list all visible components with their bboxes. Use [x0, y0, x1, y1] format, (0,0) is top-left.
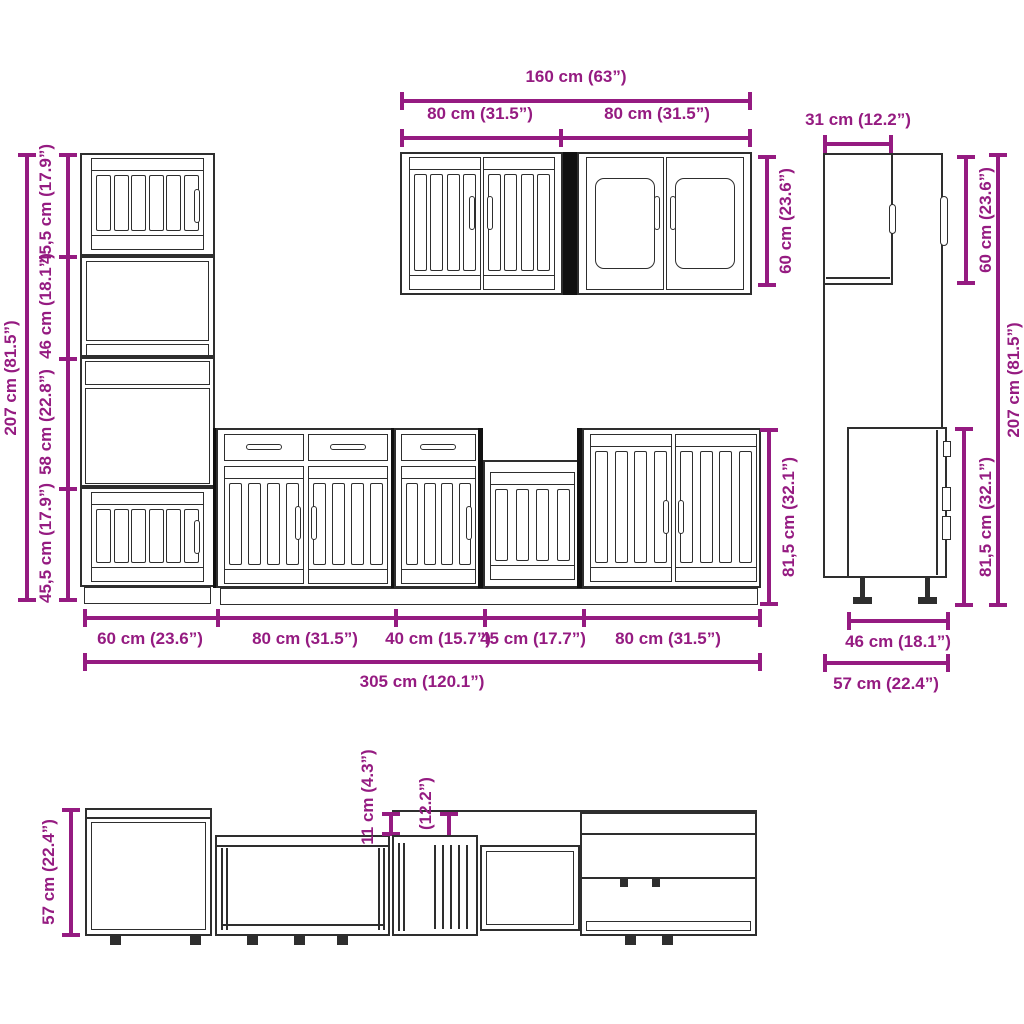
- slat-line: [450, 845, 452, 929]
- tick: [59, 357, 77, 361]
- glass-door: [666, 157, 744, 290]
- door-slat: [166, 509, 181, 563]
- door-rail: [225, 467, 303, 478]
- door-slats: [491, 484, 574, 566]
- door-slat: [332, 483, 345, 565]
- tick: [758, 653, 762, 671]
- door-slats: [225, 478, 303, 570]
- tick: [889, 135, 893, 153]
- slatted-door: [401, 466, 476, 584]
- dim-line-base-depth: [847, 619, 950, 623]
- dim-label-total-width: 305 cm (120.1”): [322, 671, 522, 693]
- tick: [748, 129, 752, 147]
- dim-line-side-base-height: [962, 427, 966, 607]
- door-slat: [700, 451, 713, 563]
- drawer-handle: [420, 444, 456, 450]
- door-slat: [414, 174, 427, 271]
- dim-label-width-80b: 80 cm (31.5”): [568, 628, 768, 650]
- door-handle-profile: [940, 196, 948, 246]
- dim-label-base-height: 81,5 cm (32.1”): [778, 417, 800, 617]
- door-slats: [402, 478, 475, 570]
- door-slat: [536, 489, 549, 561]
- door-handle: [469, 196, 475, 230]
- cabinet-front-band: [586, 921, 751, 931]
- slatted-door: [675, 434, 757, 582]
- tick: [59, 153, 77, 157]
- cabinet-line: [580, 877, 757, 879]
- drawer-edge-profile: [943, 441, 951, 457]
- tick: [957, 281, 975, 285]
- door-rail: [676, 568, 756, 581]
- dim-label-side-base-height: 81,5 cm (32.1”): [975, 417, 997, 617]
- dim-label-wall-right: 80 cm (31.5”): [557, 103, 757, 125]
- foot-mark: [247, 936, 258, 945]
- dim-line-front-offset: [389, 812, 393, 836]
- tick: [946, 612, 950, 630]
- foot-mark: [625, 936, 636, 945]
- door-slat: [557, 489, 570, 561]
- tick: [440, 812, 458, 816]
- door-slat: [131, 175, 146, 231]
- door-handle: [654, 196, 660, 230]
- glass-door: [586, 157, 664, 290]
- door-rail: [309, 570, 387, 583]
- door-slat: [495, 489, 508, 561]
- door-handle: [194, 520, 200, 554]
- tick: [758, 155, 776, 159]
- tick: [989, 153, 1007, 157]
- door-rail: [92, 493, 203, 504]
- foot-mark: [294, 936, 305, 945]
- cabinet-inner-top-view: [91, 822, 206, 930]
- open-cavity: [85, 388, 210, 484]
- door-handle-profile: [889, 204, 896, 234]
- tick: [62, 933, 80, 937]
- glass-panel: [675, 178, 735, 269]
- plinth: [220, 588, 758, 605]
- door-slat: [739, 451, 752, 563]
- door-slats: [92, 504, 203, 568]
- tick: [957, 155, 975, 159]
- drawer-side-line: [383, 848, 385, 930]
- dim-line-total-width: [83, 660, 762, 664]
- slat-line: [458, 845, 460, 929]
- dim-label-wall-total: 160 cm (63”): [476, 66, 676, 88]
- tick: [955, 427, 973, 431]
- tick: [847, 612, 851, 630]
- dim-label-total-height: 207 cm (81.5”): [0, 278, 22, 478]
- door-rail: [591, 568, 671, 581]
- dim-label-wall-height: 60 cm (23.6”): [775, 121, 797, 321]
- wall-cabinet-side: [823, 153, 893, 285]
- base-80b-top-view: [580, 812, 757, 936]
- door-rail: [402, 467, 475, 478]
- door-slat: [516, 489, 529, 561]
- dim-label-tall-section-4: 45,5 cm (17.9”): [35, 443, 57, 643]
- cabinet-line: [826, 277, 890, 279]
- cabinet-line: [221, 924, 383, 926]
- foot-mark: [190, 936, 201, 945]
- door-slat: [149, 509, 164, 563]
- dim-line-side-wall-height: [964, 155, 968, 285]
- door-slat: [719, 451, 732, 563]
- slatted-door: [590, 434, 672, 582]
- door-slat: [114, 175, 129, 231]
- cabinet-line: [936, 430, 938, 575]
- door-slat: [430, 174, 443, 271]
- tick: [59, 255, 77, 259]
- slatted-door: [91, 492, 204, 582]
- door-slat: [149, 175, 164, 231]
- slat-line: [442, 845, 444, 929]
- foot-stem: [925, 578, 930, 598]
- dim-label-base-depth: 46 cm (18.1”): [798, 631, 998, 653]
- tick: [62, 808, 80, 812]
- door-rail: [410, 276, 480, 289]
- hinge-profile: [942, 487, 951, 511]
- door-rail: [92, 568, 203, 581]
- tick: [758, 283, 776, 287]
- dim-line-total-height: [25, 153, 29, 602]
- door-slat: [248, 483, 261, 565]
- foot-mark: [337, 936, 348, 945]
- door-rail: [676, 435, 756, 446]
- door-slat: [96, 509, 111, 563]
- tick: [216, 609, 220, 627]
- tick: [59, 487, 77, 491]
- dim-line-tall-sections: [66, 153, 70, 602]
- dim-line-base-widths: [83, 616, 762, 620]
- door-slats: [309, 478, 387, 570]
- dim-line-side-total-height: [996, 153, 1000, 607]
- tick: [989, 603, 1007, 607]
- door-rail: [491, 473, 574, 484]
- door-rail: [225, 570, 303, 583]
- door-rail: [402, 570, 475, 583]
- tick: [59, 598, 77, 602]
- tick: [758, 609, 762, 627]
- tick: [559, 129, 563, 147]
- door-rail: [410, 158, 480, 169]
- dim-label-top-depth: 57 cm (22.4”): [38, 772, 60, 972]
- door-slat: [634, 451, 647, 563]
- door-slats: [92, 170, 203, 236]
- dim-label-total-depth: 57 cm (22.4”): [786, 673, 986, 695]
- cabinet-line: [398, 843, 400, 931]
- cabinet-divider: [563, 152, 577, 295]
- slat-line: [466, 845, 468, 929]
- tick: [955, 603, 973, 607]
- foot-mark: [110, 936, 121, 945]
- door-handle: [295, 506, 301, 540]
- dim-label-wall-left: 80 cm (31.5”): [380, 103, 580, 125]
- door-rail: [92, 159, 203, 170]
- drawer-handle: [246, 444, 282, 450]
- door-slats: [591, 446, 671, 568]
- foot-mark: [652, 879, 660, 887]
- door-slat: [406, 483, 418, 565]
- door-rail: [309, 467, 387, 478]
- door-rail: [591, 435, 671, 446]
- door-handle: [670, 196, 676, 230]
- door-slat: [504, 174, 517, 271]
- tick: [83, 609, 87, 627]
- drawer-handle: [330, 444, 366, 450]
- dim-line-base-height: [767, 428, 771, 606]
- tick: [400, 129, 404, 147]
- foot-base: [853, 597, 872, 604]
- door-slat: [595, 451, 608, 563]
- door-slat: [370, 483, 383, 565]
- door-slat: [131, 509, 146, 563]
- tick: [83, 653, 87, 671]
- door-rail: [92, 236, 203, 249]
- door-slat: [96, 175, 111, 231]
- tick: [18, 153, 36, 157]
- door-slat: [441, 483, 453, 565]
- tick: [823, 135, 827, 153]
- dim-label-side-total-height: 207 cm (81.5”): [1003, 280, 1024, 480]
- open-cavity: [86, 261, 209, 341]
- door-rail: [484, 158, 554, 169]
- drawer-side-line: [221, 848, 223, 930]
- slatted-door: [490, 472, 575, 580]
- kitchen-dimension-diagram: 160 cm (63”) 80 cm (31.5”) 80 cm (31.5”)…: [0, 0, 1024, 1024]
- dim-label-front-offset: 11 cm (4.3”): [357, 697, 379, 897]
- slatted-door: [308, 466, 388, 584]
- tick: [760, 602, 778, 606]
- foot-base: [918, 597, 937, 604]
- door-slats: [484, 169, 554, 276]
- glass-panel: [595, 178, 655, 269]
- slatted-door: [483, 157, 555, 290]
- drawer-side-line: [226, 848, 228, 930]
- door-handle: [311, 506, 317, 540]
- door-slat: [229, 483, 242, 565]
- door-handle: [663, 500, 669, 534]
- dim-line-total-depth: [823, 661, 950, 665]
- filler-band: [85, 361, 210, 385]
- door-slat: [267, 483, 280, 565]
- tick: [582, 609, 586, 627]
- door-handle: [466, 506, 472, 540]
- door-slat: [537, 174, 550, 271]
- door-slat: [166, 175, 181, 231]
- door-slat: [447, 174, 460, 271]
- cabinet-line: [85, 817, 212, 819]
- dim-label-wall-depth: 31 cm (12.2”): [758, 109, 958, 131]
- plinth: [84, 587, 211, 604]
- tick: [382, 812, 400, 816]
- tick: [946, 654, 950, 672]
- door-slat: [521, 174, 534, 271]
- door-handle: [194, 189, 200, 223]
- dim-label-side-wall-height: 60 cm (23.6”): [975, 120, 997, 320]
- dim-line-wall-widths: [400, 136, 752, 140]
- door-slat: [351, 483, 364, 565]
- door-rail: [491, 566, 574, 579]
- dim-line-wall-depth: [823, 142, 893, 146]
- foot-stem: [860, 578, 865, 598]
- tick: [760, 428, 778, 432]
- door-handle: [487, 196, 493, 230]
- cabinet-line: [580, 833, 757, 835]
- dim-line-wall-height: [765, 155, 769, 287]
- door-rail: [484, 276, 554, 289]
- foot-mark: [662, 936, 673, 945]
- tick: [823, 654, 827, 672]
- door-slat: [615, 451, 628, 563]
- tick: [483, 609, 487, 627]
- slatted-door: [224, 466, 304, 584]
- door-slat: [424, 483, 436, 565]
- slatted-door: [91, 158, 204, 250]
- dim-line-top-depth: [69, 808, 73, 937]
- door-slats: [676, 446, 756, 568]
- door-handle: [678, 500, 684, 534]
- shelf-band: [86, 344, 209, 356]
- base-cabinet-side: [847, 427, 947, 578]
- cabinet-inner-top-view: [486, 851, 574, 925]
- hinge-profile: [942, 516, 951, 540]
- door-slat: [114, 509, 129, 563]
- foot-mark: [620, 879, 628, 887]
- tick: [394, 609, 398, 627]
- cabinet-line: [403, 843, 405, 931]
- tick: [18, 598, 36, 602]
- slat-line: [434, 845, 436, 929]
